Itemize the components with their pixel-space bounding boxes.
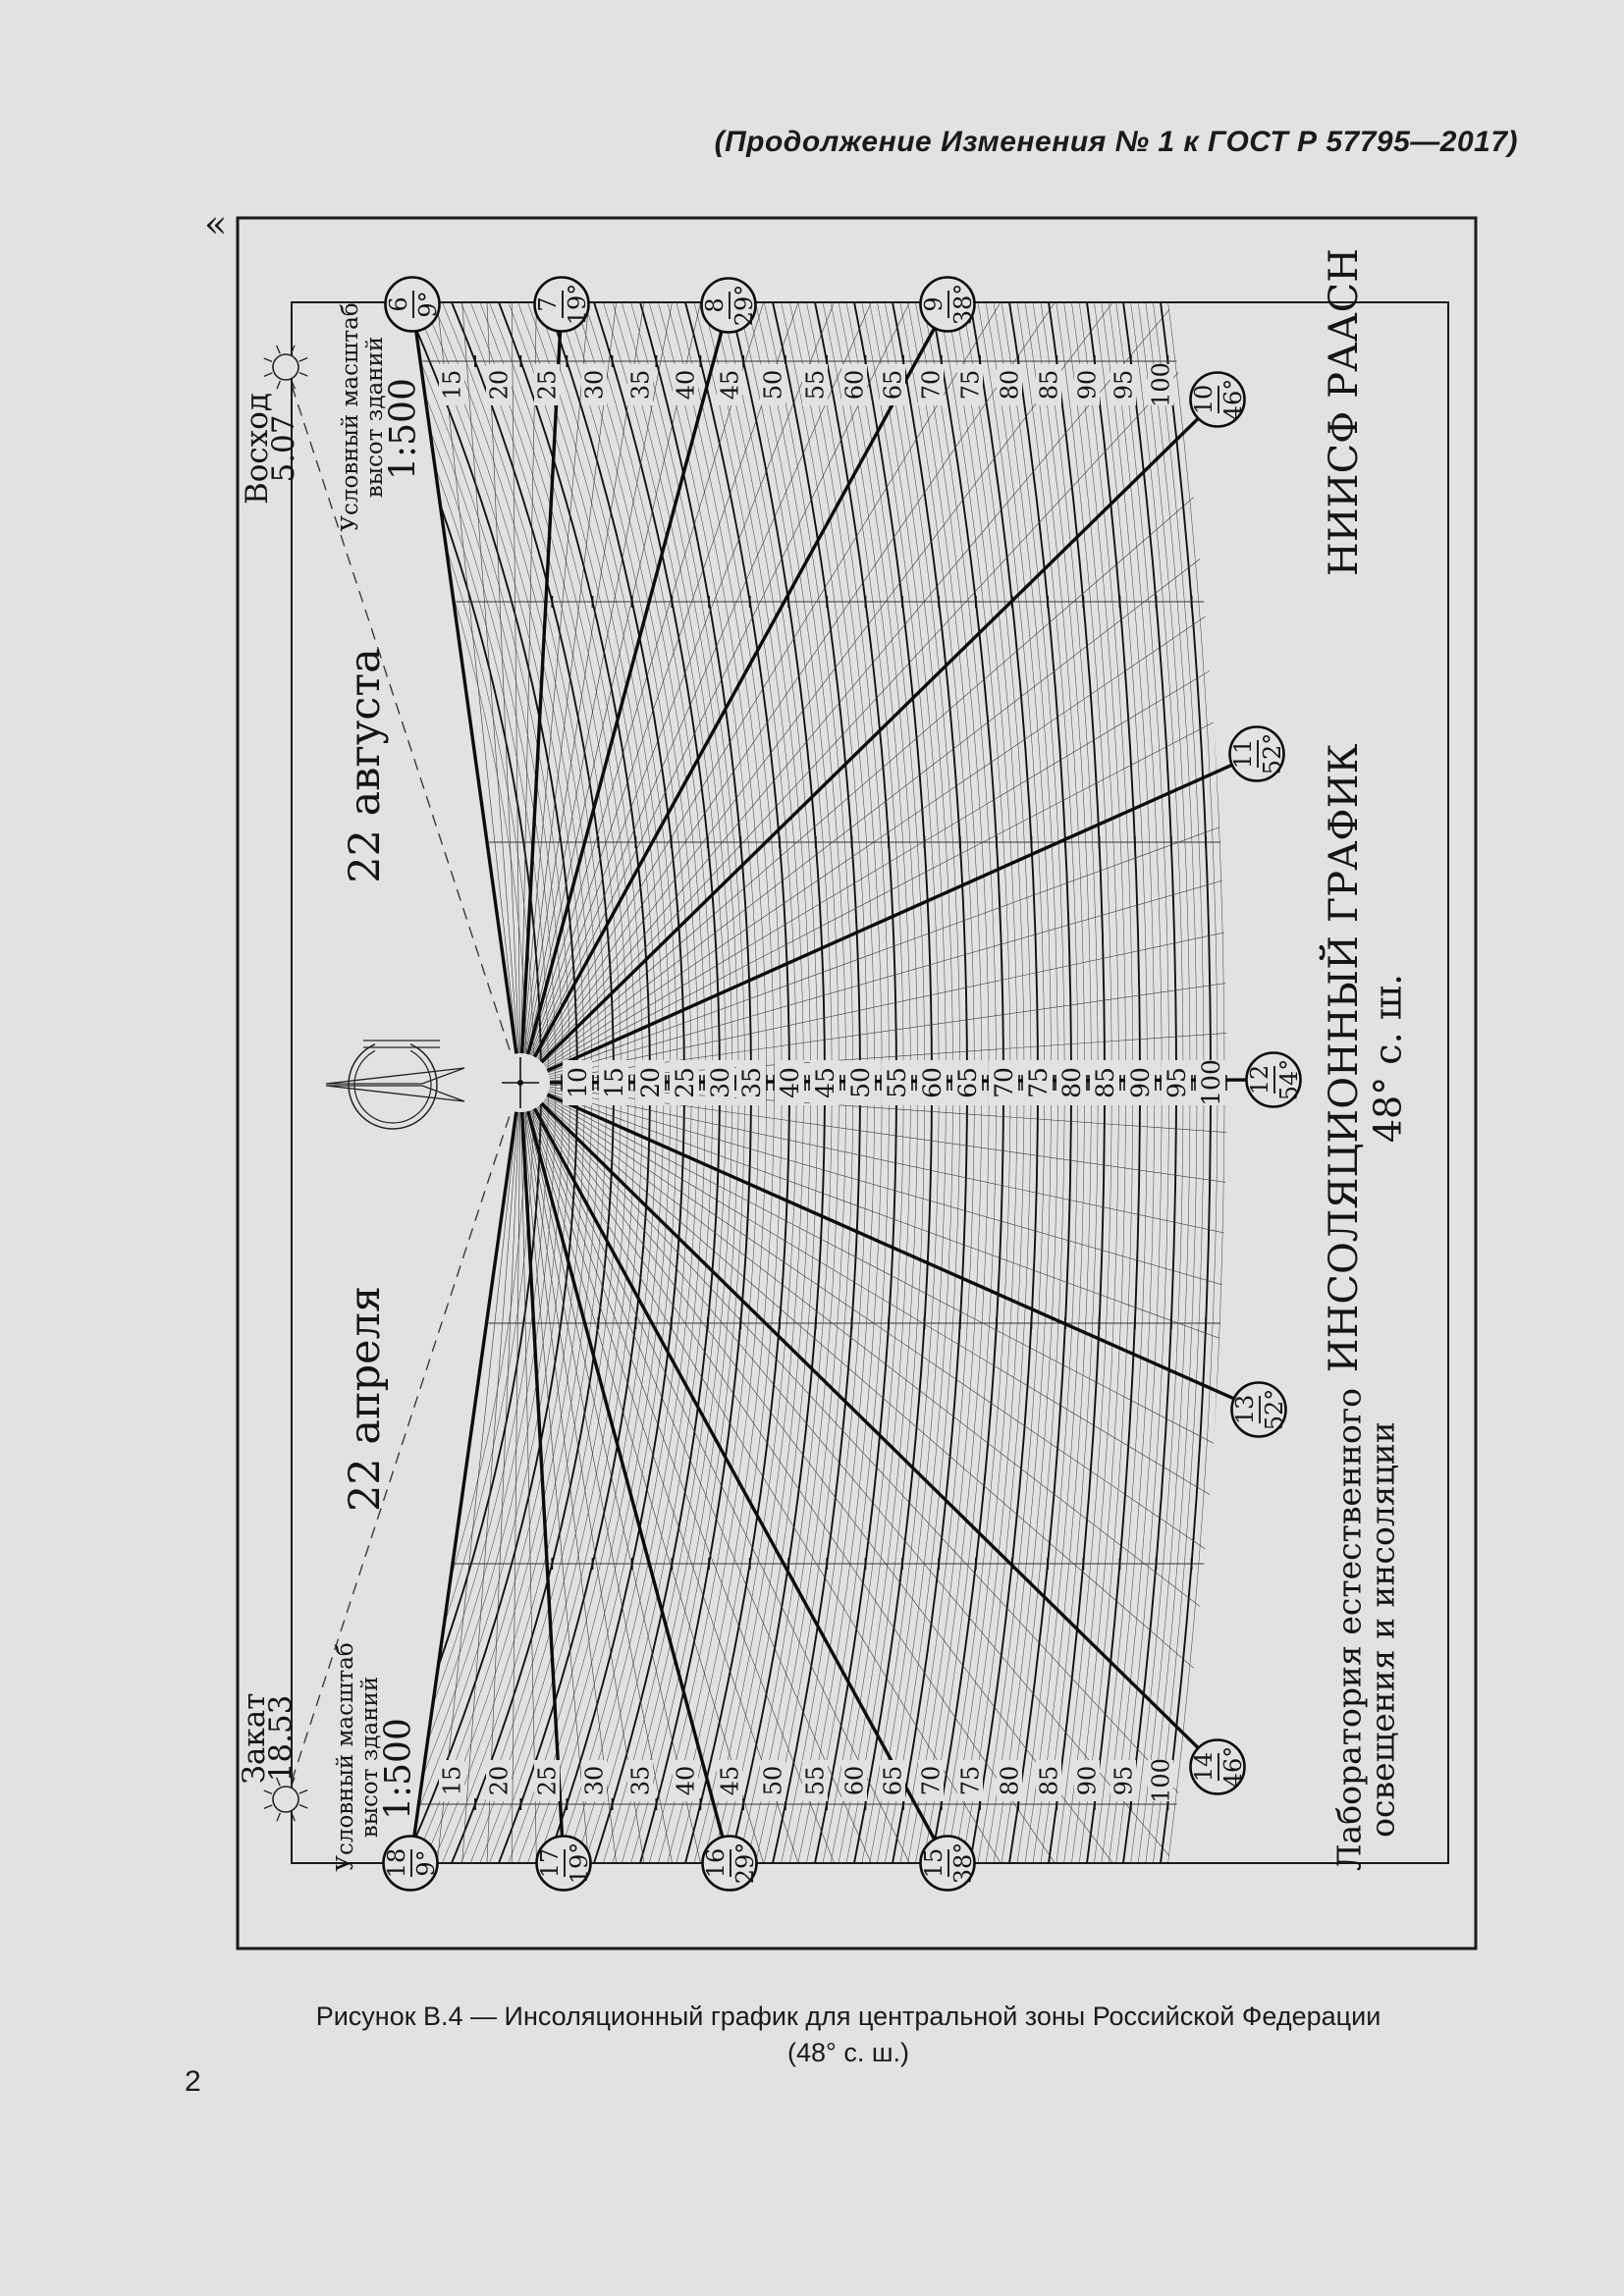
bottom-scale-label-20: 20	[485, 1766, 513, 1796]
top-scale-label-25: 25	[533, 370, 561, 400]
org-name-top: НИИСФ РААСН	[1322, 248, 1367, 576]
sunset-time: 18.53	[263, 1695, 298, 1783]
bottom-scale-label-75: 75	[956, 1766, 984, 1796]
bottom-scale-label-85: 85	[1035, 1766, 1062, 1796]
axis-scale-label-90: 90	[1126, 1067, 1155, 1098]
org-lab-line2: освещения и инсоляции	[1364, 1421, 1402, 1838]
bottom-scale-label-50: 50	[759, 1766, 786, 1796]
sun-ray	[277, 346, 281, 353]
axis-scale-label-60: 60	[918, 1067, 947, 1098]
top-scale-label-20: 20	[485, 370, 513, 400]
axis-scale-label-65: 65	[953, 1067, 982, 1098]
altitude-value: 38°	[949, 284, 977, 326]
shadow-grid	[339, 0, 1624, 2296]
sunrise-sun-icon	[264, 346, 308, 390]
altitude-value: 9°	[414, 291, 442, 317]
compass-icon	[326, 1034, 464, 1129]
altitude-value: 52°	[1261, 1389, 1288, 1431]
hour-marker-18: 189°	[383, 1837, 440, 1891]
axis-scale-label-25: 25	[671, 1067, 699, 1098]
top-scale-label-100: 100	[1147, 362, 1174, 407]
ray-10min	[539, 1105, 1404, 2135]
hour-marker-17: 1719°	[536, 1837, 593, 1891]
altitude-value: 9°	[412, 1849, 440, 1876]
hour-value: 16	[702, 1848, 730, 1879]
sun-ray	[264, 358, 272, 361]
top-scale-label-90: 90	[1073, 370, 1101, 400]
axis-scale-label-70: 70	[990, 1067, 1018, 1098]
hour-line-16	[520, 1083, 730, 1863]
hour-value: 10	[1190, 385, 1218, 415]
top-scale-label-30: 30	[580, 370, 608, 400]
hour-value: 7	[534, 296, 562, 311]
top-scale-label-95: 95	[1110, 370, 1137, 400]
bottom-scale-label-65: 65	[879, 1766, 906, 1796]
sun-ray	[264, 1790, 272, 1793]
sunset-dashed-line	[286, 1083, 520, 1799]
date-label-august: 22 августа	[341, 648, 390, 883]
axis-scale-label-85: 85	[1091, 1067, 1119, 1098]
sun-ray	[299, 1805, 307, 1808]
bottom-scale-label-80: 80	[996, 1766, 1023, 1796]
chart-title: ИНСОЛЯЦИОННЫЙ ГРАФИК	[1320, 744, 1367, 1373]
top-scale-label-70: 70	[917, 370, 945, 400]
axis-scale-label-20: 20	[636, 1067, 665, 1098]
ray-10min	[521, 1112, 549, 2296]
altitude-value: 54°	[1275, 1059, 1303, 1101]
sun-ray	[299, 1790, 307, 1794]
hour-marker-6: 69°	[385, 278, 442, 332]
axis-scale-label-55: 55	[883, 1067, 911, 1098]
axis-scale-label-80: 80	[1057, 1067, 1086, 1098]
figure-caption: Рисунок В.4 — Инсоляционный график для ц…	[295, 1999, 1402, 2071]
figure-caption-line1: Рисунок В.4 — Инсоляционный график для ц…	[295, 1999, 1402, 2035]
ray-10min	[549, 703, 1624, 1075]
hour-value: 14	[1190, 1752, 1218, 1783]
hour-marker-11: 1152°	[1229, 727, 1286, 781]
ray-10min	[521, 0, 549, 1053]
axis-scale-label-30: 30	[706, 1067, 734, 1098]
figure-caption-line2: (48° с. ш.)	[295, 2035, 1402, 2071]
ray-10min	[549, 1091, 1624, 1463]
sun-ray	[264, 373, 272, 377]
hour-value: 17	[536, 1848, 564, 1879]
ray-10min	[546, 378, 1624, 1068]
axis-scale-label-100: 100	[1197, 1059, 1225, 1106]
chart-latitude: 48° с. ш.	[1366, 974, 1409, 1143]
ray-10min	[536, 1108, 1241, 2254]
ray-10min	[418, 0, 518, 1053]
top-scale-label-15: 15	[438, 370, 465, 400]
hour-value: 8	[701, 297, 729, 312]
hour-value: 12	[1246, 1065, 1273, 1095]
hour-marker-12: 1254°	[1246, 1053, 1303, 1107]
sun-ray	[277, 381, 280, 389]
bottom-scale-label-60: 60	[840, 1766, 868, 1796]
hour-line-6	[412, 304, 520, 1083]
hub-center-dot	[517, 1080, 523, 1086]
top-scale-label-85: 85	[1035, 370, 1062, 400]
altitude-value: 38°	[949, 1842, 977, 1885]
ray-10min	[523, 1112, 640, 2296]
compass-ring-outer	[349, 1041, 437, 1129]
altitude-value: 52°	[1259, 733, 1286, 775]
sun-ray	[277, 1813, 280, 1821]
axis-scale-label-10: 10	[564, 1067, 592, 1098]
hour-marker-15: 1538°	[920, 1837, 977, 1891]
hour-marker-9: 938°	[920, 278, 977, 332]
ray-10min	[539, 30, 1404, 1060]
hour-marker-7: 719°	[534, 278, 591, 332]
bottom-scale-label-90: 90	[1073, 1766, 1101, 1796]
compass-needle	[326, 1086, 464, 1101]
compass-ring-gap	[375, 1034, 410, 1051]
axis-scale-label-35: 35	[737, 1067, 766, 1098]
sun-ray	[264, 1805, 272, 1809]
axis-scale-label-75: 75	[1024, 1067, 1053, 1098]
bottom-scale-label-45: 45	[716, 1766, 743, 1796]
hour-value: 11	[1229, 739, 1257, 770]
sun-ray	[299, 373, 307, 376]
top-scale-label-50: 50	[759, 370, 786, 400]
compass-ring-inner	[354, 1046, 431, 1123]
insolation-figure: 1015202530354045505560657075808590951001…	[0, 0, 1624, 2296]
altitude-value: 46°	[1219, 1746, 1247, 1789]
top-scale-label-35: 35	[626, 370, 654, 400]
top-scale-label-45: 45	[716, 370, 743, 400]
bottom-scale-label-40: 40	[672, 1766, 699, 1796]
bottom-scale-label-35: 35	[626, 1766, 654, 1796]
axis-scale-label-15: 15	[600, 1067, 628, 1098]
bottom-scale-label-15: 15	[438, 1766, 465, 1796]
height-scale-value-bottom: 1:500	[379, 1718, 419, 1820]
altitude-value: 29°	[731, 1842, 759, 1885]
page-number: 2	[185, 2065, 201, 2099]
height-scale-note-top-1: Условный масштаб	[338, 302, 363, 531]
axis-scale-label-95: 95	[1163, 1067, 1191, 1098]
ray-10min	[537, 0, 1297, 1058]
date-label-april: 22 апреля	[341, 1286, 390, 1512]
axis-scale-label-45: 45	[811, 1067, 839, 1098]
ray-10min	[530, 0, 982, 1055]
hour-value: 9	[920, 296, 947, 311]
ray-10min	[529, 0, 929, 1054]
hour-marker-8: 829°	[701, 279, 758, 333]
ray-10min	[540, 1104, 1454, 2091]
hour-marker-10: 1046°	[1190, 373, 1247, 427]
sun-ray	[299, 358, 307, 362]
bottom-scale-label-25: 25	[533, 1766, 561, 1796]
bottom-scale-label-100: 100	[1147, 1758, 1174, 1803]
hour-value: 18	[383, 1848, 410, 1879]
hour-value: 6	[385, 296, 412, 311]
axis-scale-label-50: 50	[846, 1067, 875, 1098]
altitude-value: 29°	[731, 285, 758, 327]
ray-10min	[375, 1112, 517, 2296]
top-scale-label-60: 60	[840, 370, 868, 400]
height-scale-note-bottom-1: Условный масштаб	[333, 1642, 358, 1871]
top-scale-label-55: 55	[801, 370, 829, 400]
hour-marker-13: 1352°	[1231, 1383, 1288, 1437]
hour-value: 13	[1231, 1395, 1259, 1425]
hour-value: 15	[920, 1848, 947, 1879]
bottom-scale-label-55: 55	[801, 1766, 829, 1796]
top-scale-label-80: 80	[996, 370, 1023, 400]
top-scale-label-65: 65	[879, 370, 906, 400]
sunrise-time: 5.07	[266, 414, 301, 482]
hour-marker-16: 1629°	[702, 1837, 759, 1891]
bottom-scale-label-95: 95	[1110, 1766, 1137, 1796]
ray-10min	[540, 75, 1454, 1061]
ray-10min	[532, 1109, 1084, 2296]
ray-10min	[546, 1097, 1624, 1788]
bottom-scale-label-30: 30	[580, 1766, 608, 1796]
sun-disc	[273, 1787, 298, 1812]
height-scale-value-top: 1:500	[384, 378, 424, 480]
ray-10min	[506, 1112, 520, 2296]
top-scale-label-75: 75	[956, 370, 984, 400]
hour-marker-14: 1446°	[1190, 1740, 1247, 1794]
sun-disc	[273, 354, 298, 380]
axis-scale-label-40: 40	[776, 1067, 804, 1098]
bottom-scale-label-70: 70	[917, 1766, 945, 1796]
altitude-value: 46°	[1219, 379, 1247, 421]
altitude-value: 19°	[564, 284, 591, 326]
document-page: (Продолжение Изменения № 1 к ГОСТ Р 5779…	[0, 0, 1624, 2296]
altitude-value: 19°	[566, 1842, 593, 1885]
top-scale-label-40: 40	[672, 370, 699, 400]
compass-needle	[326, 1068, 464, 1084]
